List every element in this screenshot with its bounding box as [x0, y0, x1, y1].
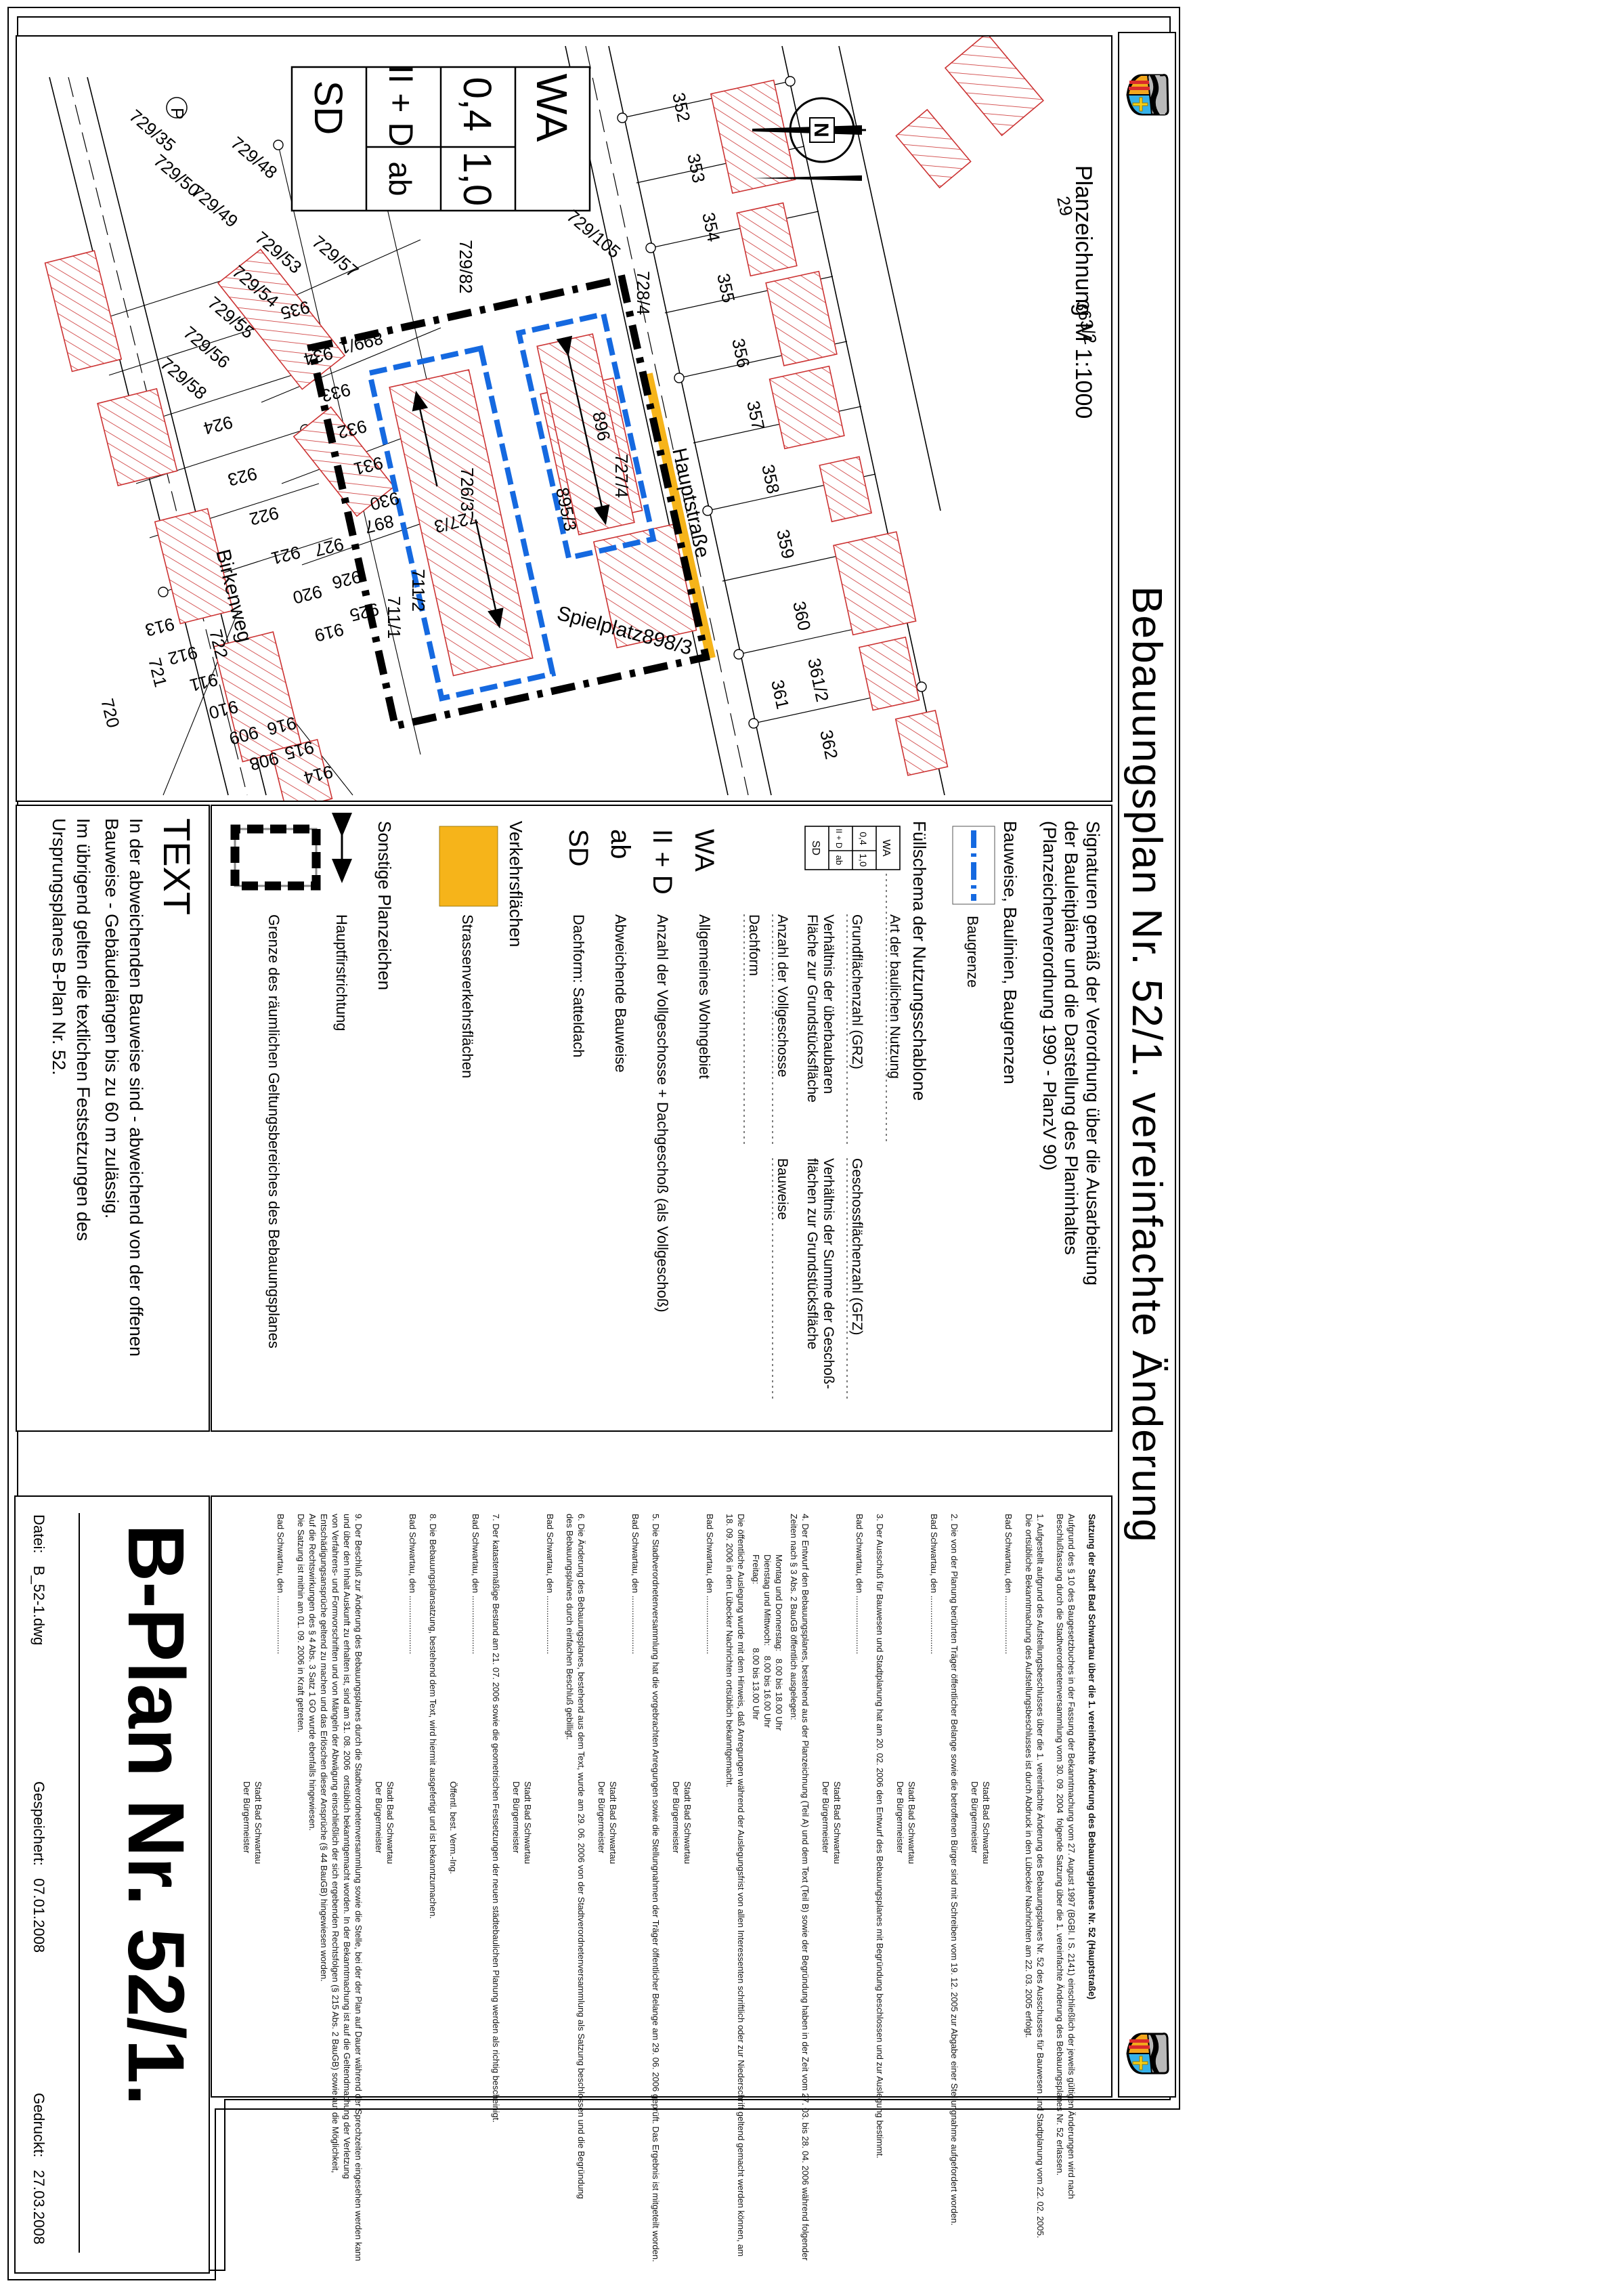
satzung-line: des Bebauungsplanes durch einfachen Besc…	[565, 1514, 574, 1740]
satzung-line: Satzung der Stadt Bad Schwartau über die…	[1087, 1514, 1096, 1999]
card-grz: 0,4	[455, 77, 499, 132]
satzung-line: 3. Der Ausschuß für Bauwesen und Stadtpl…	[875, 1514, 884, 2159]
key-sd: SD	[563, 829, 593, 867]
parcel-label: 726/3	[457, 467, 477, 511]
lbl-art: Art der baulichen Nutzung	[887, 914, 903, 1079]
parcel-label: 729/50	[150, 150, 204, 200]
lbl-gfz: Geschossflächenzahl (GFZ)	[849, 1158, 865, 1335]
parcel-label: 729/56	[179, 322, 234, 373]
legend-heading-2: der Bauleitpläne und die Darstellung des…	[1061, 821, 1081, 1255]
satzung-line: 2. Die von der Planung berührten Träger …	[949, 1514, 959, 2226]
satzung-line: 9. Der Beschluß zur Änderung des Bebauun…	[353, 1514, 363, 2261]
parcel-label: 924	[201, 412, 234, 439]
legend-section-fuellschema: Füllschema der Nutzungsschablone	[909, 821, 930, 1101]
parcel-label: 356	[728, 337, 754, 370]
parcel-label: 729/57	[308, 232, 362, 282]
parcel-label: 722	[205, 627, 232, 660]
geltungsbereich-symbol	[235, 829, 316, 886]
key-sd-label: Dachform: Satteldach	[570, 914, 587, 1058]
parcel-label: 911	[188, 669, 219, 696]
cadastral-map: Planzeichnung M 1:1000	[17, 37, 1111, 801]
satzung-line: Der Bürgermeister	[970, 1781, 979, 1853]
key-iid: II + D	[647, 829, 677, 895]
grenze-label: Grenze des räumlichen Geltungsbereiches …	[265, 914, 282, 1348]
parcel-label: 720	[97, 696, 124, 729]
plan-sheet: Bebauungsplan Nr. 52/1. vereinfachte Änd…	[7, 7, 1180, 2281]
parcel-label: 352	[668, 91, 694, 124]
parcel-label: 922	[247, 503, 280, 530]
satzung-line: 1. Aufgestellt aufgrund des Aufstellungs…	[1035, 1514, 1045, 2238]
satzung-line: Der Bürgermeister	[242, 1781, 251, 1853]
satzung-line: Der Bürgermeister	[821, 1781, 830, 1853]
lbl-verh2b: flächen zur Grundstücksfläche	[804, 1158, 820, 1349]
satzung-line: Freitag: 8.00 bis 13.00 Uhr	[751, 1554, 760, 1720]
satzung-line: Der Bürgermeister	[895, 1781, 905, 1853]
satzung-line: Entschädigungsansprüche geltend zu mache…	[319, 1514, 328, 1982]
first-label: Hauptfirstrichtung	[333, 914, 350, 1031]
satzung-panel: Satzung der Stadt Bad Schwartau über die…	[211, 1495, 1112, 2098]
satzung-line: Montag und Donnerstag: 8.00 bis 18.00 Uh…	[774, 1554, 783, 1730]
legend-card-roof: SD	[810, 841, 821, 855]
legend-heading-1: Signaturen gemäß der Verordnung über die…	[1083, 821, 1103, 1285]
satzung-line: 5. Die Stadtverordnetenversammlung hat d…	[651, 1514, 660, 2262]
lbl-grz: Grundflächenzahl (GRZ)	[849, 914, 865, 1069]
key-ab: ab	[605, 829, 635, 859]
text-line-4: Ursprungsplanes B-Plan Nr. 52.	[48, 818, 69, 1076]
parcel-label: 729/82	[456, 240, 476, 294]
buildings-corner	[883, 37, 1043, 188]
satzung-line: 8. Die Bebauungsplansatzung, bestehend d…	[428, 1514, 437, 1919]
lbl-bauweise: Bauweise	[775, 1158, 790, 1220]
parcel-label: 711/1	[384, 596, 404, 639]
satzung-line: Bad Schwartau, den .....................…	[929, 1514, 938, 1654]
satzung-line: Bad Schwartau, den .....................…	[276, 1514, 285, 1654]
parcel-label: 711/2	[408, 569, 429, 612]
satzung-line: Öffentl. best. Verm.-Ing.	[448, 1781, 458, 1874]
map-panel: Planzeichnung M 1:1000	[16, 35, 1112, 802]
bplan-panel: B-Plan Nr. 52/1. Datei: B_52-1.dwg Gespe…	[14, 1495, 210, 2274]
satzung-line: Stadt Bad Schwartau	[907, 1781, 916, 1864]
satzung-line: 18. 09. 2006 in den Lübecker Nachrichten…	[725, 1514, 734, 1787]
satzung-line: Bad Schwartau, den .....................…	[408, 1514, 417, 1654]
parcel-label: P	[167, 108, 188, 119]
satzung-line: Bad Schwartau, den .....................…	[855, 1514, 864, 1654]
satzung-line: Der Bürgermeister	[671, 1781, 680, 1853]
satzung-line: Bad Schwartau, den .....................…	[545, 1514, 555, 1654]
satzung-line: Bad Schwartau, den .....................…	[630, 1514, 640, 1654]
parcel-label: 355	[713, 272, 739, 305]
lbl-verh2a: Verhältnis der Summe der Geschoß-	[821, 1158, 836, 1389]
bplan-divider	[79, 1513, 80, 2253]
legend-section-bauweise: Bauweise, Baulinien, Baugrenzen	[1000, 821, 1020, 1084]
parcel-label: 29	[1053, 194, 1077, 218]
bplan-title: B-Plan Nr. 52/1.	[110, 1524, 202, 2242]
text-panel-heading: TEXT	[155, 818, 199, 915]
card-bauweise: ab	[383, 161, 418, 196]
satzung-line: Bad Schwartau, den .....................…	[471, 1514, 480, 1654]
satzung-line: Stadt Bad Schwartau	[683, 1781, 692, 1864]
satzung-line: 4. Der Entwurf den Bebauungsplanes, best…	[800, 1514, 810, 2261]
satzung-line: Zeiten nach § 3 Abs. 2 BauGB öffentlich …	[789, 1514, 798, 1720]
satzung-line: 7. Der katastermäßige Bestand am 21. 07.…	[491, 1514, 500, 2123]
legend-section-verkehr: Verkehrsflächen	[506, 821, 526, 947]
parcel-label: 926	[330, 566, 363, 593]
parcel-label: 729/105	[563, 206, 624, 262]
parcel-label: 921	[269, 542, 302, 569]
card-roof: SD	[306, 81, 350, 135]
text-panel: TEXT In der abweichenden Bauweise sind -…	[16, 805, 210, 1432]
file-name: Datei: B_52-1.dwg	[30, 1514, 47, 1645]
text-line-3: Im übrigend gelten die textlichen Festse…	[72, 818, 93, 1241]
parcel-label: 728/4	[633, 271, 653, 315]
satzung-lines: Satzung der Stadt Bad Schwartau über die…	[212, 1497, 1111, 2096]
parcel-label: 912	[166, 642, 199, 669]
legend-section-sonstige: Sonstige Planzeichen	[374, 821, 395, 990]
parcel-label: 358	[758, 463, 783, 496]
card-gfz: 1,0	[455, 152, 499, 207]
parcel-label: 721	[144, 656, 171, 689]
text-line-1: In der abweichenden Bauweise sind - abwe…	[125, 818, 146, 1357]
parcel-label: 919	[312, 619, 345, 646]
card-use: WA	[527, 74, 576, 142]
parcel-label: 923	[225, 463, 259, 490]
parcel-label: 920	[290, 581, 324, 608]
parcel-label: 729/48	[227, 133, 281, 183]
satzung-line: Aufgrund des § 10 des Baugesetzbuches in…	[1066, 1514, 1076, 2199]
satzung-line: Stadt Bad Schwartau	[253, 1781, 263, 1864]
satzung-line: Stadt Bad Schwartau	[981, 1781, 991, 1864]
satzung-line: Stadt Bad Schwartau	[608, 1781, 618, 1864]
legend-card-gfz: 1,0	[858, 853, 869, 867]
parcel-label: 361	[767, 678, 793, 711]
satzung-line: Stadt Bad Schwartau	[832, 1781, 842, 1864]
legend-card-bauweise: ab	[834, 855, 844, 865]
lbl-verh1b: Fläche zur Grundstücksfläche	[804, 914, 820, 1103]
legend-card-use: WA	[880, 839, 892, 857]
satzung-line: Der Bürgermeister	[597, 1781, 606, 1853]
parcel-label: 354	[698, 211, 724, 244]
parcel-label: 353	[683, 152, 709, 185]
key-wa-label: Allgemeines Wohngebiet	[696, 914, 713, 1079]
satzung-line: Der Bürgermeister	[374, 1781, 383, 1853]
page: Bebauungsplan Nr. 52/1. vereinfachte Änd…	[0, 0, 1600, 2296]
parcel-label: 913	[143, 614, 176, 641]
parcel-label: 361/2	[804, 656, 833, 704]
compass-letter: N	[810, 123, 832, 137]
key-wa: WA	[689, 829, 719, 872]
lbl-vollg: Anzahl der Vollgeschosse	[775, 914, 790, 1078]
card-floors: II + D	[382, 65, 420, 147]
parcel-label: 933	[319, 379, 352, 406]
rotated-plan-sheet: Bebauungsplan Nr. 52/1. vereinfachte Änd…	[0, 0, 1600, 2296]
legend-heading-3: (Planzeichenverordnung 1990 - PlanzV 90)	[1039, 821, 1060, 1170]
satzung-line: Stadt Bad Schwartau	[385, 1781, 395, 1864]
legend-panel: Signaturen gemäß der Verordnung über die…	[211, 805, 1112, 1432]
parcel-label: 727/4	[611, 454, 632, 498]
saved-date: Gespeichert: 07.01.2008	[30, 1781, 47, 1953]
parcel-label: 897	[362, 511, 395, 538]
satzung-line: Die öffentliche Auslegung wurde mit dem …	[736, 1514, 745, 2257]
key-iid-label: Anzahl der Vollgeschosse + Dachgeschoß (…	[654, 914, 671, 1313]
text-line-2: Bauweise - Gebäudelängen bis zu 60 m zul…	[101, 818, 122, 1218]
legend-card-floors: II + D	[834, 828, 844, 848]
lbl-verh1a: Verhältnis der überbaubaren	[821, 914, 836, 1094]
parcel-label: 359	[773, 528, 798, 561]
satzung-line: Bad Schwartau, den .....................…	[705, 1514, 714, 1654]
baugrenze-symbol	[953, 826, 995, 904]
legend-card-grz: 0,4	[858, 832, 869, 845]
satzung-line: Die ortsübliche Bekanntmachung des Aufst…	[1024, 1514, 1033, 2038]
lbl-dachform: Dachform	[746, 914, 762, 976]
satzung-line: Der Bürgermeister	[511, 1781, 521, 1853]
title-bar: Bebauungsplan Nr. 52/1. vereinfachte Änd…	[1118, 32, 1176, 2098]
printed-date: Gedruckt: 27.03.2008	[30, 2093, 47, 2245]
page-title: Bebauungsplan Nr. 52/1. vereinfachte Änd…	[1119, 33, 1175, 2096]
parcel-label: 357	[743, 399, 769, 432]
satzung-line: Beschlußfassung durch die Stadtverordnet…	[1055, 1514, 1064, 2175]
parcel-label: 360	[789, 599, 815, 633]
satzung-line: 6. Die Änderung des Bebauungsplanes, bes…	[576, 1514, 586, 2199]
parcel-label: 925	[347, 599, 381, 626]
satzung-line: Auf die Rechtswirkungen des § 4 Abs. 3 S…	[307, 1514, 317, 1831]
satzung-line: und über den Inhalt Auskunft zu erhalten…	[342, 1514, 351, 2179]
strassenverkehr-symbol	[439, 826, 498, 906]
parcel-label: 927	[312, 534, 345, 561]
satzung-line: Bad Schwartau, den .....................…	[1003, 1514, 1013, 1654]
satzung-line: Die Satzung ist mithin am 01. 09. 2006 i…	[296, 1514, 305, 1732]
satzung-line: Dienstag und Mittwoch: 8.00 bis 16.00 Uh…	[762, 1554, 772, 1728]
satzung-line: von Verfahrens- und Formvorschriften und…	[330, 1514, 340, 2173]
coat-of-arms-right	[1126, 2031, 1169, 2075]
key-ab-label: Abweichende Bauweise	[612, 914, 629, 1073]
satzung-line: Stadt Bad Schwartau	[523, 1781, 532, 1864]
parcel-label: 729/58	[156, 354, 211, 404]
baugrenze-label: Baugrenze	[964, 916, 981, 987]
verkehr-label: Strassenverkehrsflächen	[459, 914, 476, 1078]
parcel-label: 362	[816, 728, 842, 761]
